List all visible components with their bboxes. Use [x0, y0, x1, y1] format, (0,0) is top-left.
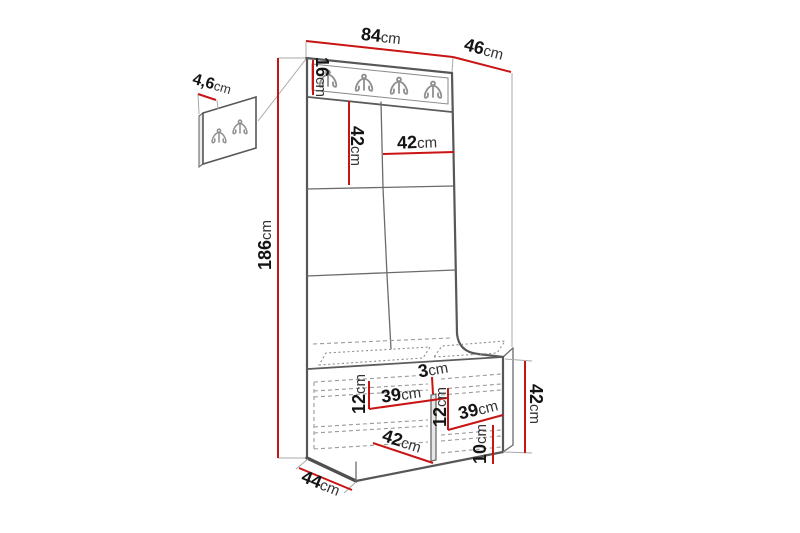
dim-label-bench-height: 42cm: [526, 384, 546, 424]
dim-tile-height: 42cm: [347, 101, 367, 185]
dim-line-panel-thickness: [198, 94, 216, 100]
dim-rail-height: 16cm: [312, 57, 332, 97]
dim-label-shelf-drop-left: 12cm: [349, 374, 369, 414]
bench-top-front-edge: [308, 357, 503, 369]
hook-rail: [320, 71, 442, 98]
dim-tile-width: 42cm: [383, 131, 454, 154]
coat-hook-icon: [391, 78, 408, 94]
dim-label-panel-thickness: 4,6cm: [190, 71, 233, 98]
wall-panel-front-face: [203, 97, 256, 164]
dim-label-shelf-drop-mid: 12cm: [430, 387, 450, 427]
coat-hook-icon: [356, 75, 373, 91]
coat-hook-icon: [425, 82, 442, 98]
dim-label-tile-height: 42cm: [347, 126, 367, 166]
seat-cushion-right: [434, 341, 505, 357]
wall-hook-panel: [199, 59, 306, 167]
dim-label-width: 84cm: [360, 24, 402, 48]
dim-depth: 46cm: [453, 34, 512, 347]
dim-bench-inner-depth: 42cm: [373, 425, 433, 463]
dim-line-tile-width: [383, 152, 454, 154]
rail-bottom-edge: [308, 97, 452, 112]
bench-right-bottom-edge: [503, 445, 513, 452]
diagram-canvas: 4,6cm 84cm 46cm: [0, 0, 800, 533]
bench-right-top-edge: [503, 348, 513, 357]
dim-plinth-height: 10cm: [470, 424, 493, 464]
furniture-dimension-diagram: 4,6cm 84cm 46cm: [0, 0, 800, 533]
dim-label-shelf-width-right: 39cm: [456, 394, 500, 423]
dim-label-total-height: 186cm: [255, 220, 275, 270]
dim-label-rail-height: 16cm: [312, 57, 332, 97]
dim-bench-height: 42cm: [503, 359, 546, 453]
dim-shelf-drop-left: 12cm: [349, 374, 369, 414]
dim-label-tile-width: 42cm: [397, 131, 438, 152]
dim-label-depth: 46cm: [462, 34, 506, 63]
dim-line-depth: [453, 57, 511, 72]
dim-label-plinth-height: 10cm: [470, 424, 490, 464]
dim-label-divider: 3cm: [416, 357, 449, 382]
dim-total-height: 186cm: [255, 58, 308, 458]
pointer-line: [258, 59, 306, 121]
panel-right-edge: [452, 73, 503, 357]
dim-shelf-drop-mid: 12cm: [430, 387, 450, 430]
